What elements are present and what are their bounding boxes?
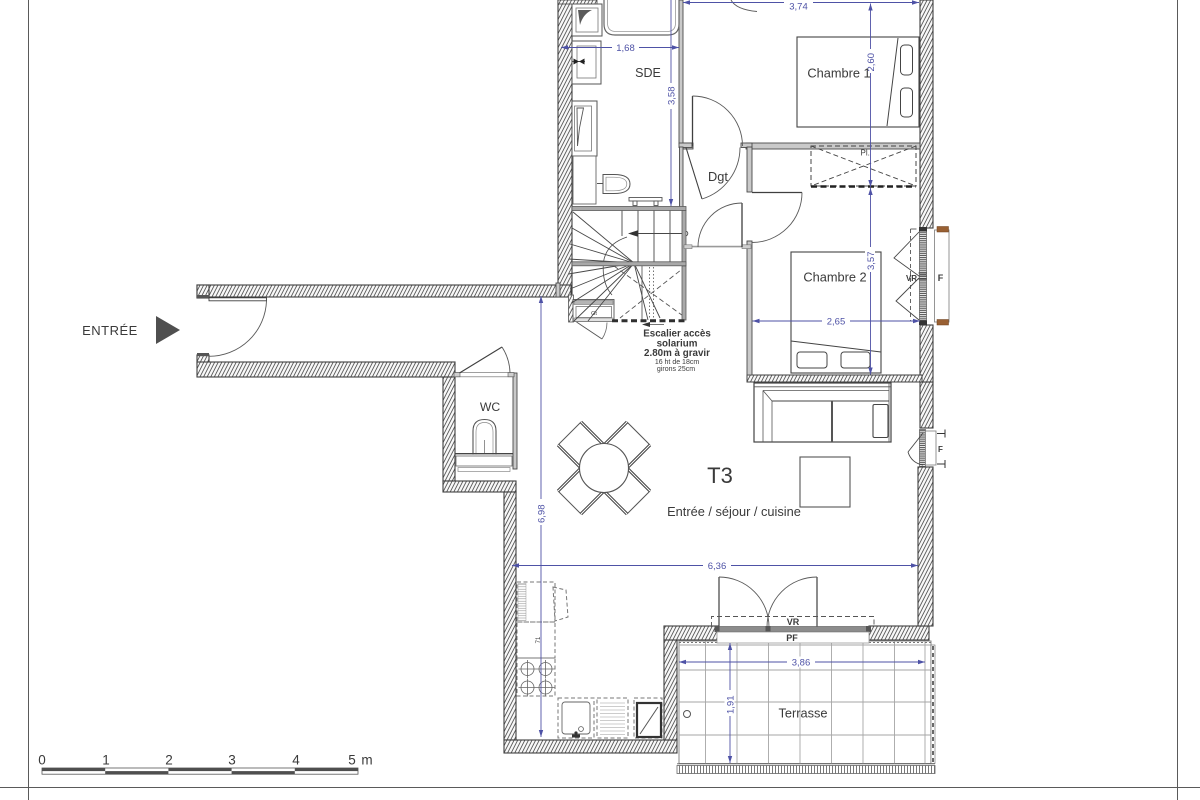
- svg-text:3: 3: [228, 753, 236, 768]
- svg-text:ENTRÉE: ENTRÉE: [82, 323, 138, 338]
- svg-text:VR: VR: [906, 274, 917, 283]
- svg-text:Chambre 1: Chambre 1: [807, 66, 870, 81]
- svg-text:2,65: 2,65: [827, 317, 846, 328]
- svg-text:2: 2: [165, 753, 173, 768]
- svg-text:3,57: 3,57: [866, 252, 877, 271]
- svg-text:16 ht de 18cm: 16 ht de 18cm: [655, 359, 700, 366]
- svg-text:SDE: SDE: [635, 66, 661, 80]
- svg-text:F: F: [938, 445, 943, 454]
- svg-text:4: 4: [292, 753, 300, 768]
- svg-text:WC: WC: [480, 400, 501, 414]
- svg-text:Entrée / séjour / cuisine: Entrée / séjour / cuisine: [667, 504, 801, 519]
- svg-text:VR: VR: [787, 617, 800, 627]
- svg-text:Terrasse: Terrasse: [778, 706, 827, 721]
- svg-text:2.80m à gravir: 2.80m à gravir: [644, 348, 710, 359]
- svg-text:5: 5: [348, 753, 356, 768]
- svg-text:3,86: 3,86: [792, 658, 811, 669]
- svg-text:T3: T3: [707, 463, 733, 488]
- svg-text:6,98: 6,98: [537, 505, 548, 524]
- svg-text:1,91: 1,91: [726, 696, 737, 715]
- svg-text:0: 0: [38, 753, 46, 768]
- svg-text:6,36: 6,36: [708, 561, 727, 572]
- svg-text:Chambre 2: Chambre 2: [803, 270, 866, 285]
- svg-text:1: 1: [102, 753, 110, 768]
- svg-text:girons 25cm: girons 25cm: [657, 366, 695, 373]
- svg-text:m: m: [361, 753, 372, 768]
- svg-text:3,58: 3,58: [667, 87, 678, 106]
- svg-text:1,68: 1,68: [616, 43, 635, 54]
- svg-text:Pl.: Pl.: [861, 149, 870, 158]
- svg-text:3,74: 3,74: [789, 2, 808, 13]
- svg-text:PF: PF: [786, 633, 798, 643]
- svg-text:Dgt: Dgt: [708, 169, 728, 184]
- svg-text:F: F: [938, 273, 944, 283]
